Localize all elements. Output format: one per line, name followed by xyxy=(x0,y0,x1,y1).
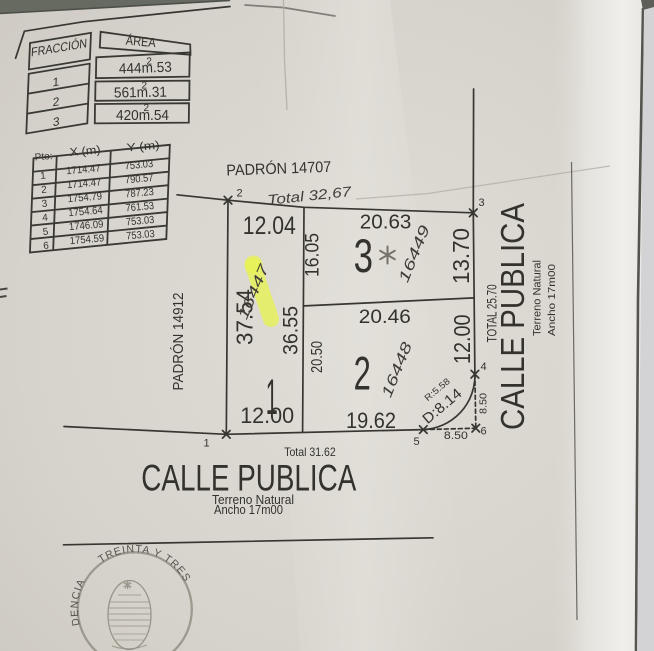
svg-text:8.50: 8.50 xyxy=(478,393,489,414)
svg-text:790.57: 790.57 xyxy=(125,172,155,186)
svg-text:3: 3 xyxy=(354,229,373,282)
svg-text:Pto:: Pto: xyxy=(34,151,53,164)
svg-text:8.50: 8.50 xyxy=(444,430,468,442)
svg-text:1: 1 xyxy=(52,74,60,89)
svg-text:2: 2 xyxy=(146,56,152,67)
svg-text:6: 6 xyxy=(481,426,487,438)
svg-text:13.70: 13.70 xyxy=(448,228,474,284)
svg-text:1: 1 xyxy=(266,369,278,425)
svg-text:5: 5 xyxy=(414,436,420,448)
svg-text:420m.54: 420m.54 xyxy=(116,108,169,124)
svg-text:4: 4 xyxy=(481,361,487,373)
svg-text:20.46: 20.46 xyxy=(359,307,411,328)
svg-text:12.04: 12.04 xyxy=(243,212,296,240)
svg-text:CALLE PUBLICA: CALLE PUBLICA xyxy=(494,203,531,430)
svg-text:787.23: 787.23 xyxy=(125,186,155,200)
svg-text:1: 1 xyxy=(204,437,210,449)
svg-text:36.55: 36.55 xyxy=(280,306,303,355)
svg-text:561m.31: 561m.31 xyxy=(114,85,167,102)
svg-text:2: 2 xyxy=(144,103,150,114)
svg-text:PADRÓN 14912: PADRÓN 14912 xyxy=(170,293,187,391)
svg-text:Terreno Natural: Terreno Natural xyxy=(532,260,544,336)
svg-text:761.53: 761.53 xyxy=(125,200,155,214)
svg-text:444m.53: 444m.53 xyxy=(119,60,173,78)
svg-text:19.62: 19.62 xyxy=(346,408,396,433)
svg-text:12.00: 12.00 xyxy=(449,315,475,365)
svg-text:2: 2 xyxy=(142,81,148,92)
svg-text:2: 2 xyxy=(237,188,243,200)
svg-text:753.03: 753.03 xyxy=(124,158,154,172)
svg-text:2: 2 xyxy=(52,94,60,109)
svg-text:20.50: 20.50 xyxy=(309,341,326,373)
svg-text:Ancho 17m00: Ancho 17m00 xyxy=(546,264,558,336)
svg-text:753.03: 753.03 xyxy=(125,214,155,228)
svg-text:3: 3 xyxy=(53,114,61,129)
svg-text:3: 3 xyxy=(479,197,485,209)
svg-text:16.05: 16.05 xyxy=(303,233,324,277)
svg-text:2: 2 xyxy=(354,347,371,400)
svg-text:753.03: 753.03 xyxy=(126,228,156,242)
svg-text:ÁREA: ÁREA xyxy=(125,33,156,51)
svg-text:Ancho 17m00: Ancho 17m00 xyxy=(214,502,283,517)
